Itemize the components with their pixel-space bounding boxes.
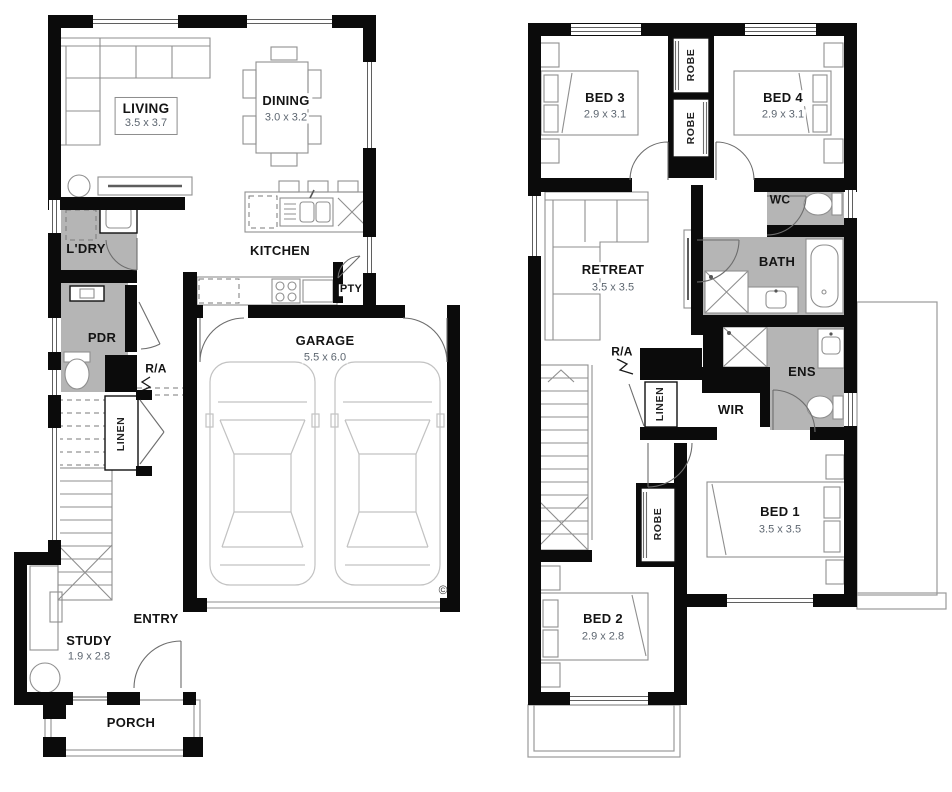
dining-dims: 3.0 x 3.2 <box>263 113 309 124</box>
porch-post <box>43 737 66 757</box>
living-name: LIVING <box>123 102 170 117</box>
gf-stairs <box>58 396 112 600</box>
window <box>727 595 813 606</box>
roof-outline <box>857 302 937 595</box>
room-label-wc: WC <box>769 194 792 207</box>
garage-internal-door <box>200 318 244 362</box>
room-label-wir: WIR <box>715 402 747 418</box>
window <box>570 693 648 704</box>
window <box>571 24 641 35</box>
window <box>364 62 375 148</box>
uf-stairs <box>535 365 592 550</box>
fridge-space <box>199 279 239 303</box>
retreat-dims: 3.5 x 3.5 <box>590 283 636 294</box>
uf-ra-pointer <box>617 359 633 374</box>
label-robe-b: ROBE <box>685 112 697 145</box>
room-label-study: STUDY <box>63 633 115 649</box>
window <box>529 196 540 256</box>
window <box>73 694 107 703</box>
label-robe-a: ROBE <box>685 49 697 82</box>
room-label-bed3: BED 3 <box>582 90 628 106</box>
window <box>364 237 375 273</box>
room-label-garage: GARAGE <box>293 333 358 349</box>
bed4-door <box>716 142 754 180</box>
room-label-ens: ENS <box>785 364 819 380</box>
gf-ra-pointer <box>139 377 150 392</box>
balcony-outline <box>528 705 680 757</box>
car-2 <box>331 362 444 585</box>
wc-toilet <box>804 193 842 215</box>
living-dims: 3.5 x 3.7 <box>123 117 170 130</box>
porch-post <box>183 737 203 757</box>
kitchen-bench <box>197 277 337 305</box>
room-label-entry: ENTRY <box>130 611 181 627</box>
linen-door <box>629 384 644 426</box>
ens-vanity <box>818 329 844 368</box>
room-label-kitchen: KITCHEN <box>247 243 313 259</box>
bath-vanity <box>748 287 798 313</box>
label-uf-ra: R/A <box>610 346 634 359</box>
label-robe-c: ROBE <box>652 508 664 541</box>
bathtub <box>806 239 843 313</box>
room-label-dining: DINING <box>259 93 312 109</box>
room-label-ldry: L'DRY <box>63 241 109 257</box>
study-dims: 1.9 x 2.8 <box>66 652 112 663</box>
bed3-door <box>630 142 668 180</box>
upper-floor-plan <box>528 23 946 757</box>
pdr-basin <box>70 286 104 301</box>
window <box>745 24 816 35</box>
study-chair <box>30 663 60 693</box>
window <box>49 428 60 540</box>
kitchen-island <box>245 181 368 232</box>
oven <box>303 280 333 302</box>
study-desk <box>30 566 58 650</box>
copyright-mark: © <box>439 583 448 597</box>
room-label-pdr: PDR <box>85 330 119 346</box>
bed4-dims: 2.9 x 3.1 <box>760 110 806 121</box>
bed2-dims: 2.9 x 2.8 <box>580 632 626 643</box>
window <box>845 190 856 218</box>
room-label-porch: PORCH <box>104 715 158 731</box>
bath-shower <box>705 271 748 313</box>
bed1-dims: 3.5 x 3.5 <box>757 525 803 536</box>
floor-plan-page: LIVING 3.5 x 3.7 DINING 3.0 x 3.2 KITCHE… <box>0 0 952 792</box>
ens-toilet <box>807 396 843 419</box>
window <box>247 16 332 27</box>
window <box>93 16 178 27</box>
window <box>49 318 60 352</box>
tap <box>310 190 314 198</box>
label-uf-linen: LINEN <box>654 387 666 422</box>
pdr-toilet <box>64 352 90 389</box>
room-label-retreat: RETREAT <box>579 262 648 278</box>
room-label-bed4: BED 4 <box>760 90 806 106</box>
label-gf-linen: LINEN <box>115 417 127 452</box>
bed3-dims: 2.9 x 3.1 <box>582 110 628 121</box>
room-label-living: LIVING 3.5 x 3.7 <box>115 97 178 135</box>
label-gf-ra: R/A <box>144 363 168 376</box>
linen-double-doors <box>140 400 164 464</box>
room-label-pty: PTY <box>339 284 363 296</box>
garage-dims: 5.5 x 6.0 <box>302 353 348 364</box>
window <box>845 393 856 426</box>
room-label-bath: BATH <box>756 254 798 270</box>
window <box>49 200 60 233</box>
room-label-bed1: BED 1 <box>757 504 803 520</box>
entry-front-door <box>134 641 181 688</box>
garage-side-door <box>403 318 447 362</box>
car-1 <box>206 362 319 585</box>
pdr-door <box>139 302 160 349</box>
porch-post <box>43 698 66 719</box>
room-label-bed2: BED 2 <box>580 611 626 627</box>
pantry-corner-door <box>338 256 360 278</box>
ens-shower <box>723 327 767 367</box>
garage-door-panel <box>207 602 440 608</box>
side-table <box>68 175 90 197</box>
window <box>49 370 60 395</box>
